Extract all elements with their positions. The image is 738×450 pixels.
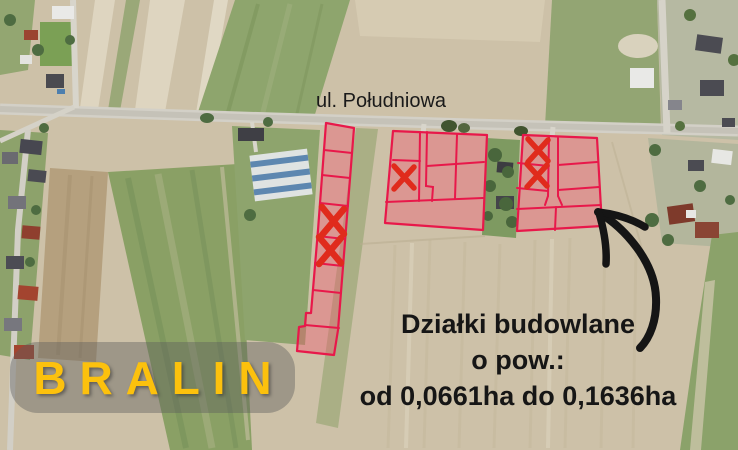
town-name: BRALIN [21, 351, 285, 405]
info-line-3: od 0,0661ha do 0,1636ha [330, 378, 706, 414]
plots-info-text: Działki budowlane o pow.: od 0,0661ha do… [330, 306, 706, 414]
info-line-2: o pow.: [330, 342, 706, 378]
plot-group-middle-block [385, 131, 487, 230]
plot-group-right-block [517, 135, 602, 231]
town-banner: BRALIN [10, 342, 295, 413]
street-label: ul. Południowa [306, 90, 456, 113]
listing-image: ul. Południowa Działki budowlane o pow.:… [0, 0, 738, 450]
info-line-1: Działki budowlane [330, 306, 706, 342]
